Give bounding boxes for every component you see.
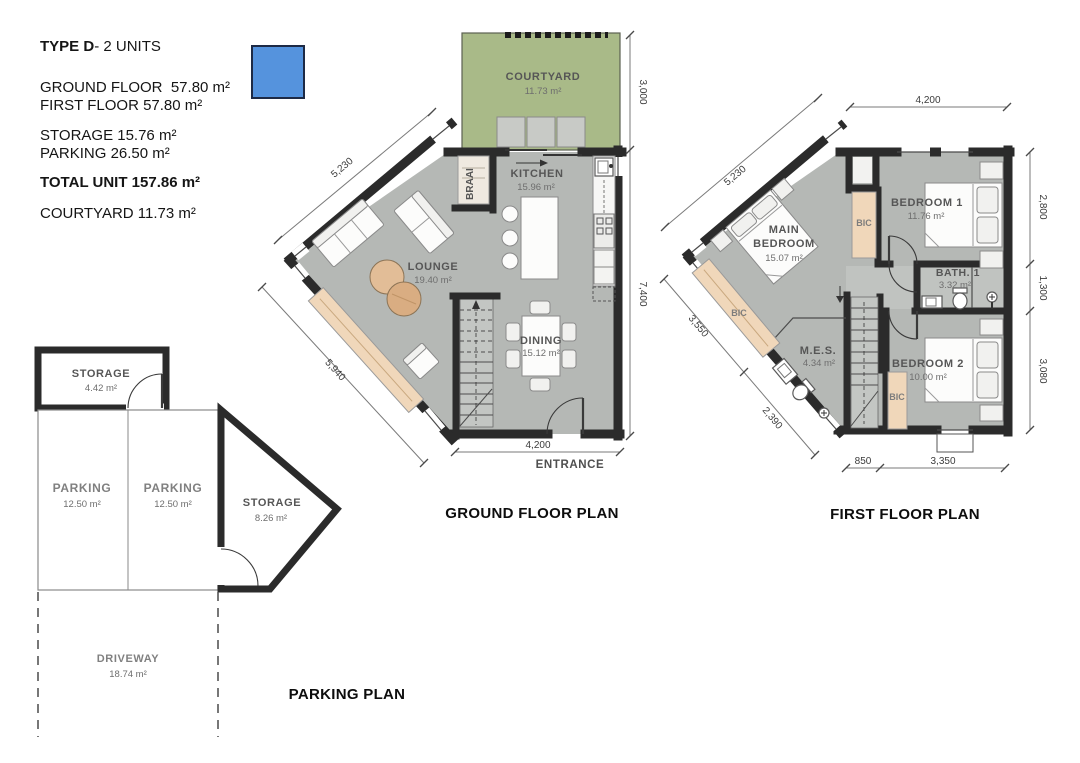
chair (562, 350, 576, 368)
dining-area-label: 15.12 m² (522, 348, 560, 359)
mes-area-label: 4.34 m² (803, 358, 835, 369)
toilet (953, 293, 967, 309)
storage-right-label: STORAGE (243, 497, 301, 509)
parking-plan: STORAGE 4.42 m² PARKING 12.50 m² PARKING… (38, 350, 337, 737)
dim-first-3550: 3,550 (686, 313, 711, 340)
bath1-label: BATH. 1 (936, 267, 980, 279)
bedroom2-label: BEDROOM 2 (892, 358, 964, 370)
courtyard-label: COURTYARD (506, 71, 581, 83)
main-bedroom-label-2: BEDROOM (753, 238, 815, 250)
driveway-area-label: 18.74 m² (109, 669, 147, 680)
dim-bottom-3350: 3,350 (930, 456, 955, 467)
pillow (977, 217, 998, 243)
pillow (977, 372, 998, 398)
parking-right-label: PARKING (144, 481, 203, 495)
dim-lower-left-5940: 5,940 (322, 357, 347, 383)
lounge-label: LOUNGE (408, 261, 459, 273)
kitchen-label: KITCHEN (510, 168, 563, 180)
storage-right: STORAGE 8.26 m² (221, 410, 337, 589)
ground-stairs (453, 296, 497, 436)
balcony-box (937, 434, 973, 452)
dim-upper-left-5230: 5,230 (329, 156, 356, 181)
mes-label: M.E.S. (800, 345, 837, 357)
dim-bottom-4200: 4,200 (525, 440, 550, 451)
parking-right-area-label: 12.50 m² (154, 499, 192, 510)
braai-label: BRAAI (465, 168, 476, 200)
side-table (980, 251, 1003, 268)
bath1-area-label: 3.32 m² (939, 280, 971, 291)
storage-top: STORAGE 4.42 m² (38, 350, 166, 408)
bic-left-label: BIC (731, 308, 747, 318)
stool (502, 253, 518, 269)
dim-right-7400: 7,400 (637, 281, 648, 306)
courtyard-planters (497, 117, 585, 147)
dim-first-2390: 2,390 (760, 405, 785, 432)
closet (853, 157, 872, 183)
plans-drawing: COURTYARD 11.73 m² (0, 0, 1080, 763)
entrance-label: ENTRANCE (536, 459, 605, 471)
side-table (980, 319, 1003, 335)
storage-right-area-label: 8.26 m² (255, 513, 287, 524)
dim-right-1300: 1,300 (1037, 275, 1048, 300)
ground-floor-plan: COURTYARD 11.73 m² (258, 31, 648, 471)
dim-right-3080: 3,080 (1037, 358, 1048, 383)
dim-bottom-850: 850 (855, 456, 872, 467)
pillow (977, 342, 998, 368)
main-bedroom-label-1: MAIN (769, 224, 800, 236)
side-table (980, 405, 1003, 421)
kitchen-area-label: 15.96 m² (517, 182, 555, 193)
storage-top-label: STORAGE (72, 368, 130, 380)
courtyard-area-label: 11.73 m² (525, 86, 562, 97)
parking-bays: PARKING 12.50 m² PARKING 12.50 m² (38, 410, 218, 590)
braai-niche: BRAAI (455, 152, 493, 210)
bic-bottom-label: BIC (889, 392, 905, 402)
kitchen-island (521, 197, 558, 279)
bedroom1-area-label: 11.76 m² (908, 211, 945, 222)
dining-label: DINING (520, 335, 562, 347)
chair (506, 323, 520, 341)
storage-top-area-label: 4.42 m² (85, 383, 117, 394)
chair (530, 378, 550, 391)
stool (502, 230, 518, 246)
dim-right-2800: 2,800 (1037, 194, 1048, 219)
parking-left-label: PARKING (53, 481, 112, 495)
dim-top-4200: 4,200 (915, 95, 940, 106)
first-floor-plan: BIC BIC BIC BEDROOM 1 11.76 m² (660, 94, 1048, 472)
side-table (980, 162, 1003, 179)
chair (562, 323, 576, 341)
lounge-area-label: 19.40 m² (414, 275, 452, 286)
chair (530, 301, 550, 314)
main-bedroom-area-label: 15.07 m² (765, 253, 803, 264)
pillow (977, 187, 998, 213)
bedroom2-area-label: 10.00 m² (909, 372, 947, 383)
stool (502, 206, 518, 222)
driveway: DRIVEWAY 18.74 m² (38, 592, 218, 737)
bedroom1-label: BEDROOM 1 (891, 197, 963, 209)
parking-left-area-label: 12.50 m² (63, 499, 101, 510)
bic-top-label: BIC (856, 218, 872, 228)
chair (506, 350, 520, 368)
dim-courtyard-3000: 3,000 (637, 79, 648, 104)
driveway-label: DRIVEWAY (97, 653, 160, 665)
floor-plan-sheet: TYPE D- 2 UNITS GROUND FLOOR 57.80 m² FI… (0, 0, 1080, 763)
